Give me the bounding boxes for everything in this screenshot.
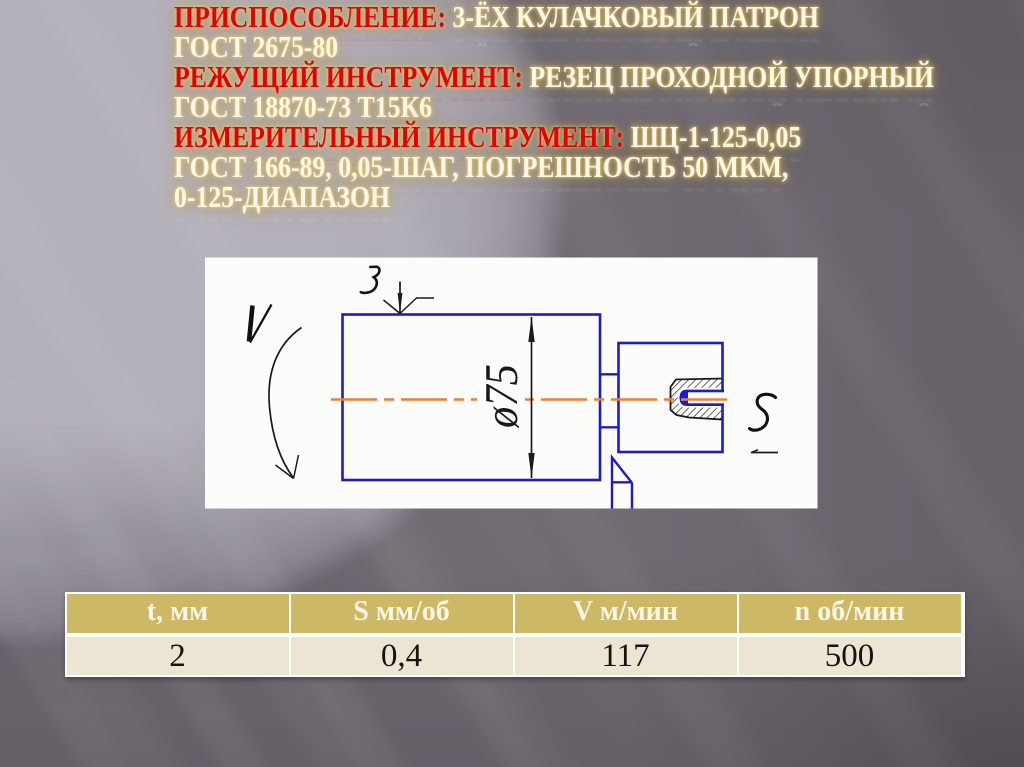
svg-text:ø75: ø75 [476, 364, 528, 429]
